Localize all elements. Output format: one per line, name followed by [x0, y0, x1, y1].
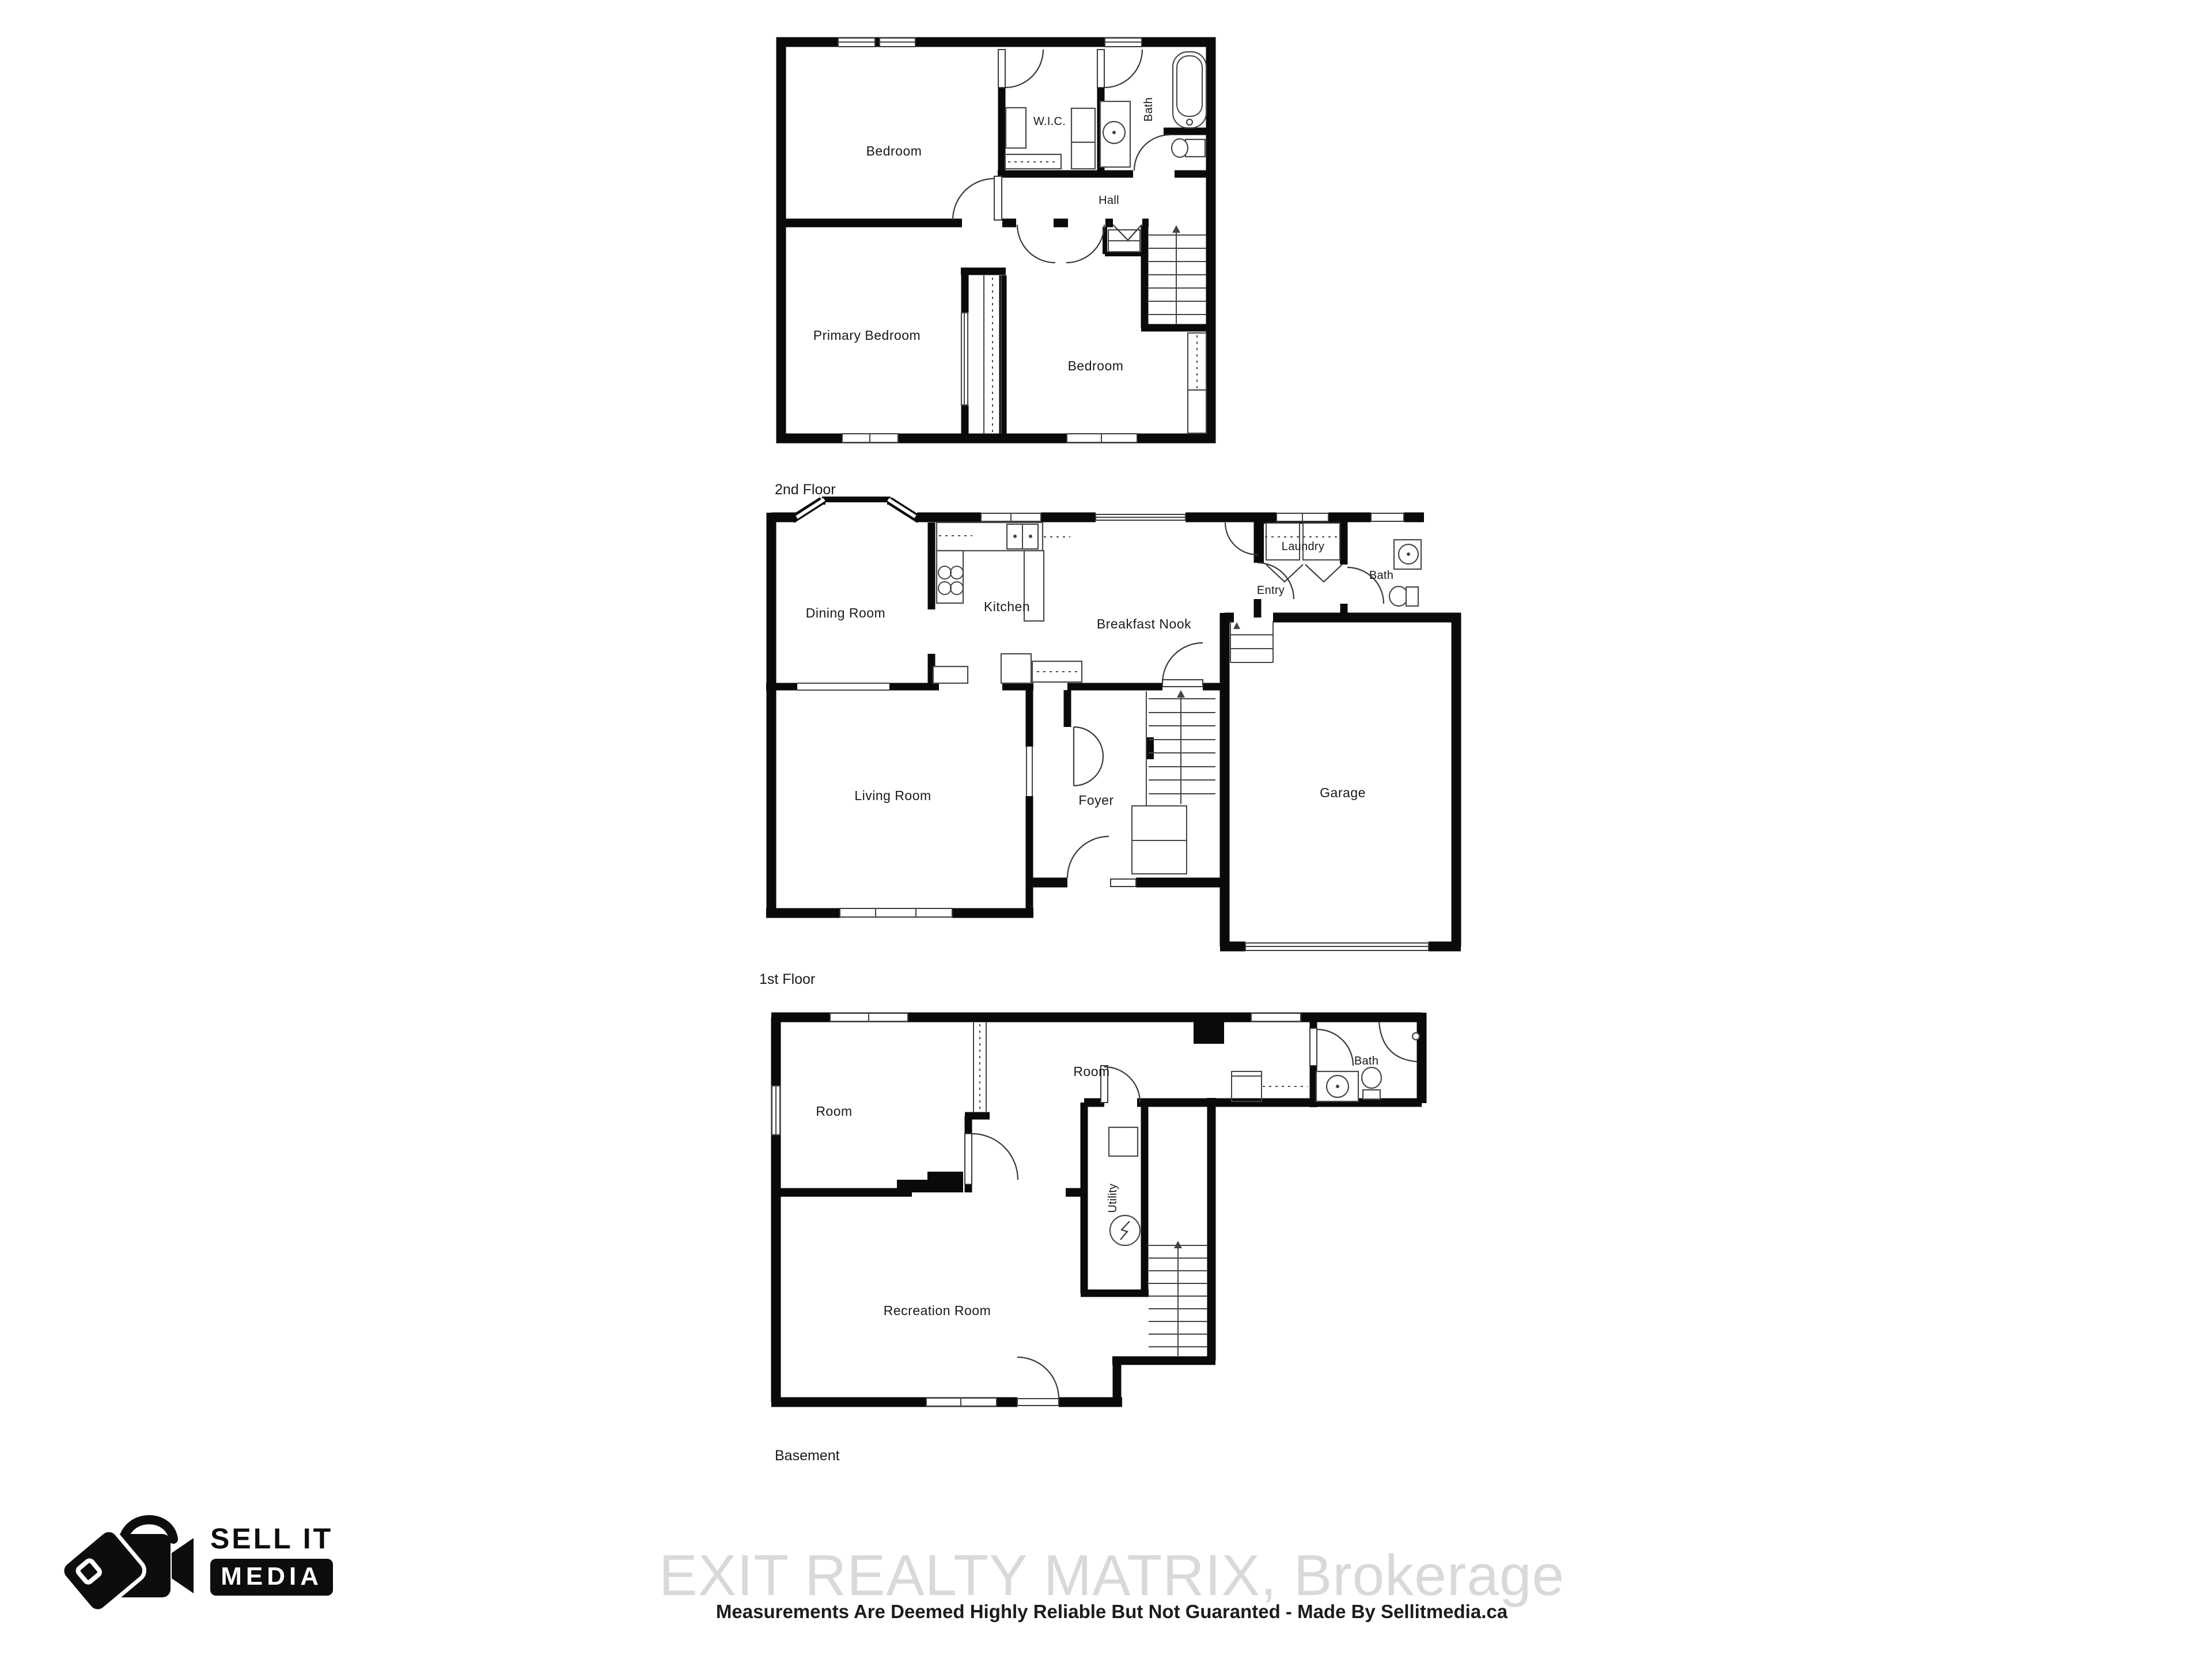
room-label-bath-basement: Bath: [1354, 1055, 1378, 1067]
brokerage-watermark: EXIT REALTY MATRIX, Brokerage: [645, 1543, 1578, 1609]
windows-basement: [772, 1013, 1301, 1406]
room-label-hall: Hall: [1099, 194, 1119, 207]
room-label-wic: W.I.C.: [1033, 115, 1066, 128]
bath-fixtures-1st-floor: [1389, 540, 1421, 606]
up-arrow-icon: [1172, 225, 1180, 233]
floor-label-2nd-floor: 2nd Floor: [775, 482, 836, 498]
room-label-foyer: Foyer: [1078, 793, 1113, 808]
floor-label-1st-floor: 1st Floor: [759, 971, 815, 987]
floor-plan-basement: Room Room Bath Utility Recreation Room B…: [771, 1013, 1422, 1464]
doors-basement: [965, 1028, 1353, 1406]
room-label-living-room: Living Room: [854, 788, 931, 803]
logo-text-media: MEDIA: [210, 1559, 333, 1596]
room-label-bedroom-1: Bedroom: [866, 143, 922, 158]
disclaimer-text: Measurements Are Deemed Highly Reliable …: [657, 1601, 1567, 1623]
sell-it-media-logo: SELL IT MEDIA: [62, 1502, 333, 1629]
floor-plan-1st-floor: Dining Room Kitchen Breakfast Nook Laund…: [759, 499, 1461, 987]
room-label-breakfast-nook: Breakfast Nook: [1097, 616, 1191, 631]
room-label-bath-2f: Bath: [1142, 97, 1155, 122]
floor-plan-canvas: Bedroom W.I.C. Bath Hall Primary Bedroom…: [0, 0, 2212, 1659]
up-arrow-icon: [1233, 622, 1240, 629]
room-label-kitchen: Kitchen: [984, 599, 1030, 614]
stairs-basement: [1149, 1241, 1207, 1356]
floor-plan-2nd-floor: Bedroom W.I.C. Bath Hall Primary Bedroom…: [775, 38, 1211, 498]
room-labels-1st-floor: Dining Room Kitchen Breakfast Nook Laund…: [806, 540, 1393, 808]
up-arrow-icon: [1174, 1241, 1182, 1248]
kitchen-fixtures: [797, 522, 1082, 796]
room-label-garage: Garage: [1320, 785, 1366, 800]
room-label-utility: Utility: [1107, 1184, 1119, 1213]
windows-2nd-floor: [838, 38, 1142, 442]
room-label-bath-1f: Bath: [1369, 569, 1393, 582]
room-label-recreation-room: Recreation Room: [884, 1303, 991, 1318]
floor-label-basement: Basement: [775, 1448, 840, 1464]
room-label-primary-bedroom: Primary Bedroom: [813, 328, 921, 343]
up-arrow-icon: [1177, 690, 1185, 698]
logo-text-sell-it: SELL IT: [210, 1522, 333, 1555]
camera-tag-icon: [62, 1502, 198, 1629]
room-label-room-1: Room: [816, 1104, 852, 1119]
room-label-room-2: Room: [1073, 1064, 1109, 1079]
room-label-dining-room: Dining Room: [806, 605, 885, 620]
room-label-laundry: Laundry: [1282, 540, 1324, 553]
room-label-bedroom-2: Bedroom: [1068, 358, 1124, 373]
stairs-up-2nd-floor: [1149, 225, 1206, 324]
room-label-entry: Entry: [1257, 584, 1285, 597]
